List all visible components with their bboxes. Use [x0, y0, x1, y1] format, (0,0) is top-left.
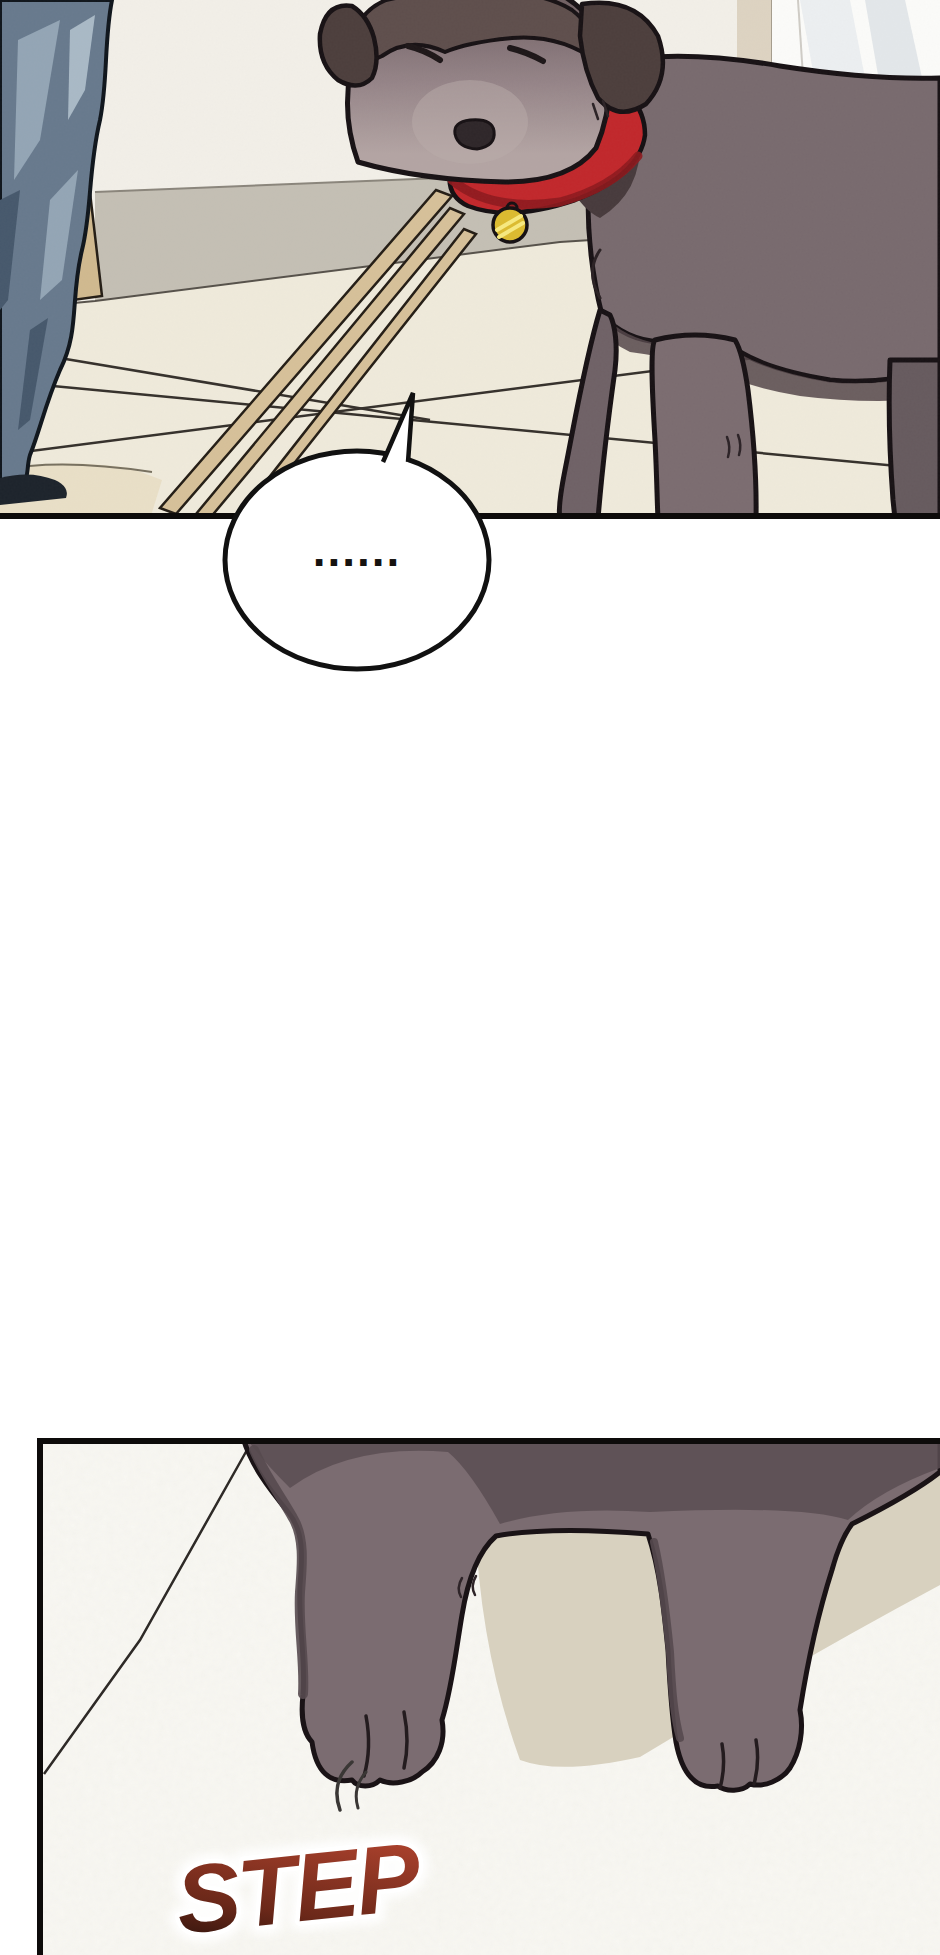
webtoon-page: ......	[0, 0, 940, 1955]
bubble-text: ......	[313, 524, 402, 576]
panel2-border-left	[37, 1438, 43, 1955]
panel2-border-top	[37, 1438, 940, 1444]
paper-texture	[0, 0, 940, 519]
panel-paws-closeup: STEP STEP	[37, 1438, 940, 1955]
comic-artwork: ......	[0, 0, 940, 1955]
panel-room-dog	[0, 0, 940, 519]
